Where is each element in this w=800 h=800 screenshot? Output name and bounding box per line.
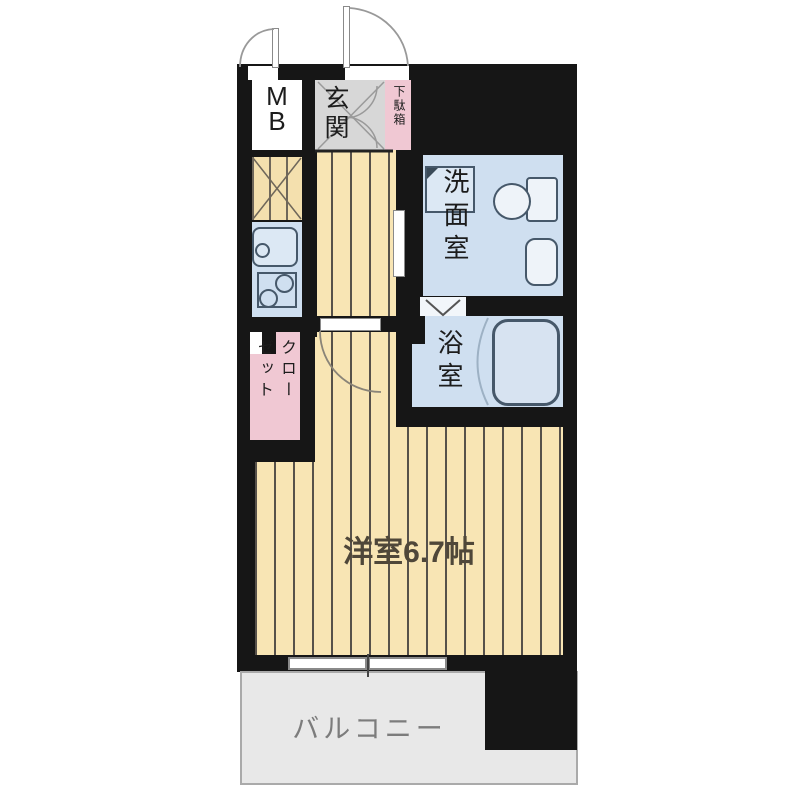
- entrance-label: 玄関: [317, 85, 353, 143]
- mb-door-arc-icon: [240, 29, 274, 67]
- bathroom-door-gap: [420, 297, 466, 316]
- entrance-door-arc-icon: [350, 8, 408, 66]
- western-room-label: 洋室6.7帖: [255, 527, 563, 571]
- shoe-cabinet-label: 下駄箱: [391, 85, 408, 127]
- bathtub-icon: [492, 319, 560, 406]
- entrance-door-opening: [345, 66, 409, 80]
- room-door-leaf: [320, 318, 381, 331]
- stove-burner-icon: [275, 274, 294, 293]
- balcony-label: バルコニー: [262, 707, 477, 746]
- sliding-window-left: [288, 657, 367, 670]
- bathroom-label: 浴室: [431, 329, 468, 395]
- kitchen-faucet-icon: [255, 243, 270, 258]
- toilet-bowl-icon: [493, 183, 531, 220]
- mb-door-leaf: [272, 28, 279, 68]
- sliding-window-right: [368, 657, 447, 670]
- washroom-sink-icon: [525, 238, 558, 286]
- balcony-wall-block: [485, 658, 577, 750]
- washroom-label: 洗面室: [437, 168, 474, 267]
- floor-plan: M B 玄関 下駄箱 洗面室 浴室 クロー ゼット 洋室6.7帖 バルコニー: [0, 0, 800, 800]
- bathroom-wall-stub: [412, 316, 425, 344]
- mb-door-opening: [248, 66, 278, 80]
- closet-label: クロー ゼット: [250, 339, 298, 439]
- refrigerator-space: [252, 157, 302, 220]
- entrance-door-leaf: [343, 6, 350, 68]
- stove-burner-icon: [259, 289, 278, 308]
- meter-box-label: M B: [252, 84, 302, 133]
- washroom-sliding-door: [393, 210, 405, 277]
